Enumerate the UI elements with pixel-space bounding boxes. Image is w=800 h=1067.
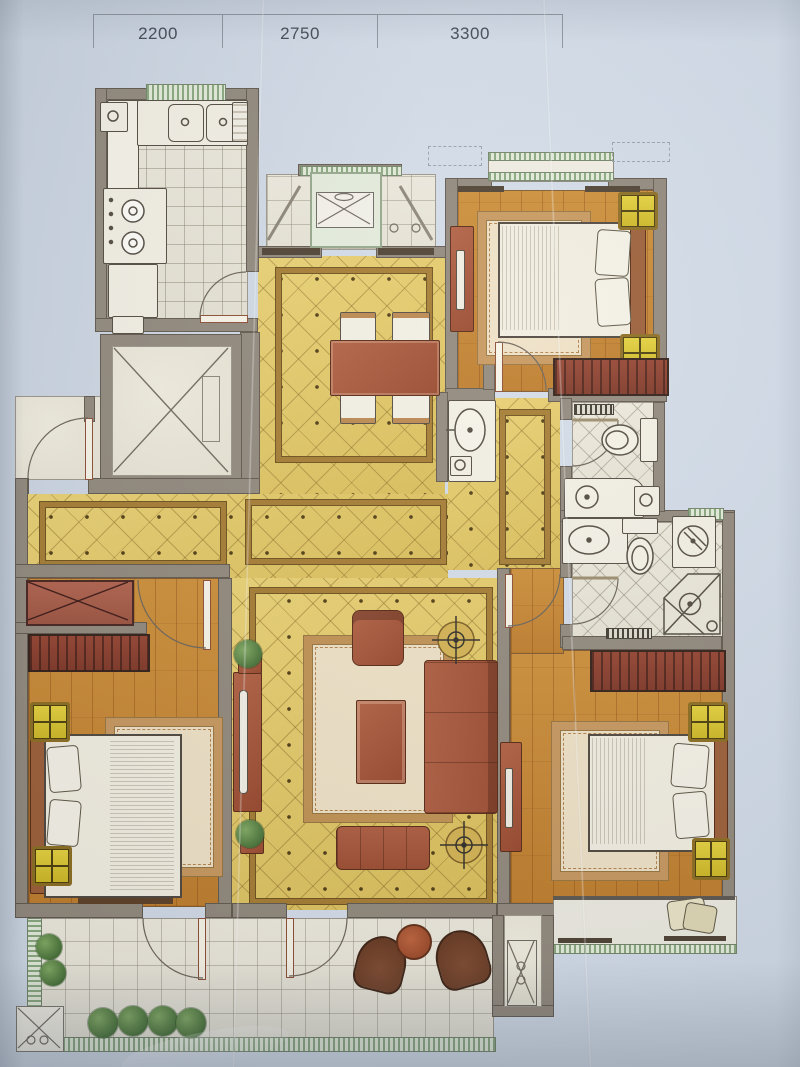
guest-bath-fixtures [576,425,652,508]
ac-unit-cross [18,1008,60,1048]
master-bath-fixtures [569,526,720,634]
platform-cross [318,194,420,233]
plan-symbols-layer [0,0,800,1067]
elevator-cross [114,348,228,472]
kitchen-door-arc [200,272,246,318]
bedroom1-door-arc [498,342,546,390]
living-balcony-door-arc [289,918,347,976]
vanity-sink [446,409,485,470]
floor-plan-photo: 2200 2750 3300 [0,0,800,1067]
door-swing-arcs [28,272,618,978]
ac-unit-cross [508,941,534,1003]
bedroom2-balcony-door-arc [143,918,203,978]
master-door-arc [508,574,560,626]
ceiling-lamp-symbol [432,616,488,869]
ac-closet-cross [28,582,128,620]
stove-burners [108,111,227,254]
bedroom2-door-arc [138,580,206,648]
entry-door-arc [28,418,88,478]
master-bath-door-arc [572,578,618,624]
